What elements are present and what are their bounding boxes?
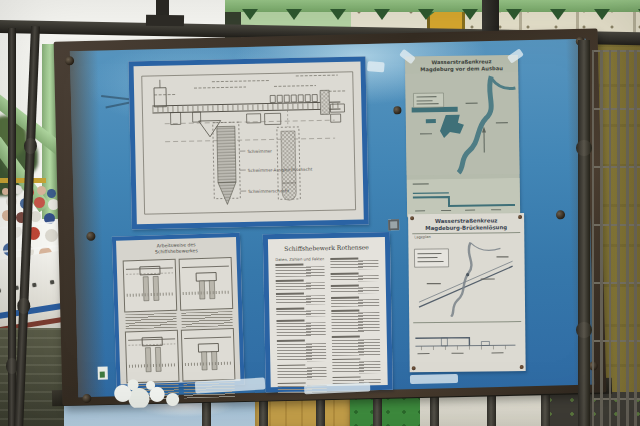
face-bolt <box>393 106 401 114</box>
poster-facts-sheet: Schiffshebewerk Rothensee Daten, Zahlen … <box>263 232 393 392</box>
poster-title: Wasserstraßenkreuz Magdeburg vor dem Aus… <box>407 58 516 73</box>
square-fastener <box>388 219 399 230</box>
photo-scene: Schwimmer Schwimmer-Ausgleichsschacht Sc… <box>0 0 640 426</box>
board-blue-face: Schwimmer Schwimmer-Ausgleichsschacht Sc… <box>70 39 594 398</box>
poster-cross-section-schematic: Schwimmer Schwimmer-Ausgleichsschacht Sc… <box>128 57 368 230</box>
facts-column-header: Daten, Zahlen und Fakten <box>275 256 324 262</box>
girder-rivet-cones <box>228 9 640 20</box>
frame-bolt <box>82 394 91 403</box>
phase-diagram <box>178 257 233 311</box>
profile-drawing <box>411 323 523 358</box>
poster-title: Arbeitsweise des Schiffshebewerkes <box>118 241 234 257</box>
small-sticker <box>98 366 108 379</box>
caption-lines <box>125 313 176 330</box>
fence-flat-bar <box>578 40 590 426</box>
tape-remnant <box>367 61 385 72</box>
rail-bracket-plate <box>146 15 184 27</box>
poster-bridge-solution: Wasserstraßenkreuz Magdeburg-Brückenlösu… <box>408 213 526 372</box>
tape-remnant <box>410 374 458 384</box>
text-column-left: Daten, Zahlen und Fakten <box>275 256 326 397</box>
rusty-tack <box>410 216 414 220</box>
profile-drawing <box>407 178 521 218</box>
rusty-tack <box>520 365 524 369</box>
caption-lines <box>181 311 232 328</box>
label-schwimmer: Schwimmer <box>247 148 272 154</box>
phase-cell <box>178 257 233 328</box>
text-column-right <box>330 255 381 396</box>
poster-map-pre-expansion: Wasserstraßenkreuz Magdeburg vor dem Aus… <box>405 55 520 217</box>
rust-staining <box>70 51 106 398</box>
phase-diagram <box>122 259 177 313</box>
bird-dropping-splatter <box>111 361 182 409</box>
site-plan-drawing <box>410 238 523 317</box>
wire-mesh-fence <box>592 50 640 426</box>
facts-title: Schiffshebewerk Rothensee <box>270 243 383 252</box>
phase-diagram <box>180 328 235 382</box>
schematic-drawing: Schwimmer Schwimmer-Ausgleichsschacht Sc… <box>134 62 364 225</box>
map-drawing <box>405 72 519 176</box>
label-schwimmerschacht: Schwimmerschacht <box>248 188 289 194</box>
notice-board: Schwimmer Schwimmer-Ausgleichsschacht Sc… <box>54 28 607 405</box>
poster-title-line2: Magdeburg-Brückenlösung <box>410 224 522 232</box>
rusty-tack <box>412 366 416 370</box>
poster-title: Wasserstraßenkreuz Magdeburg-Brückenlösu… <box>410 217 522 232</box>
rusty-tack <box>518 215 522 219</box>
fence-bar <box>8 28 16 426</box>
facts-columns: Daten, Zahlen und Fakten <box>268 253 388 397</box>
yellow-handrail <box>0 178 46 183</box>
phase-cell <box>122 259 177 330</box>
